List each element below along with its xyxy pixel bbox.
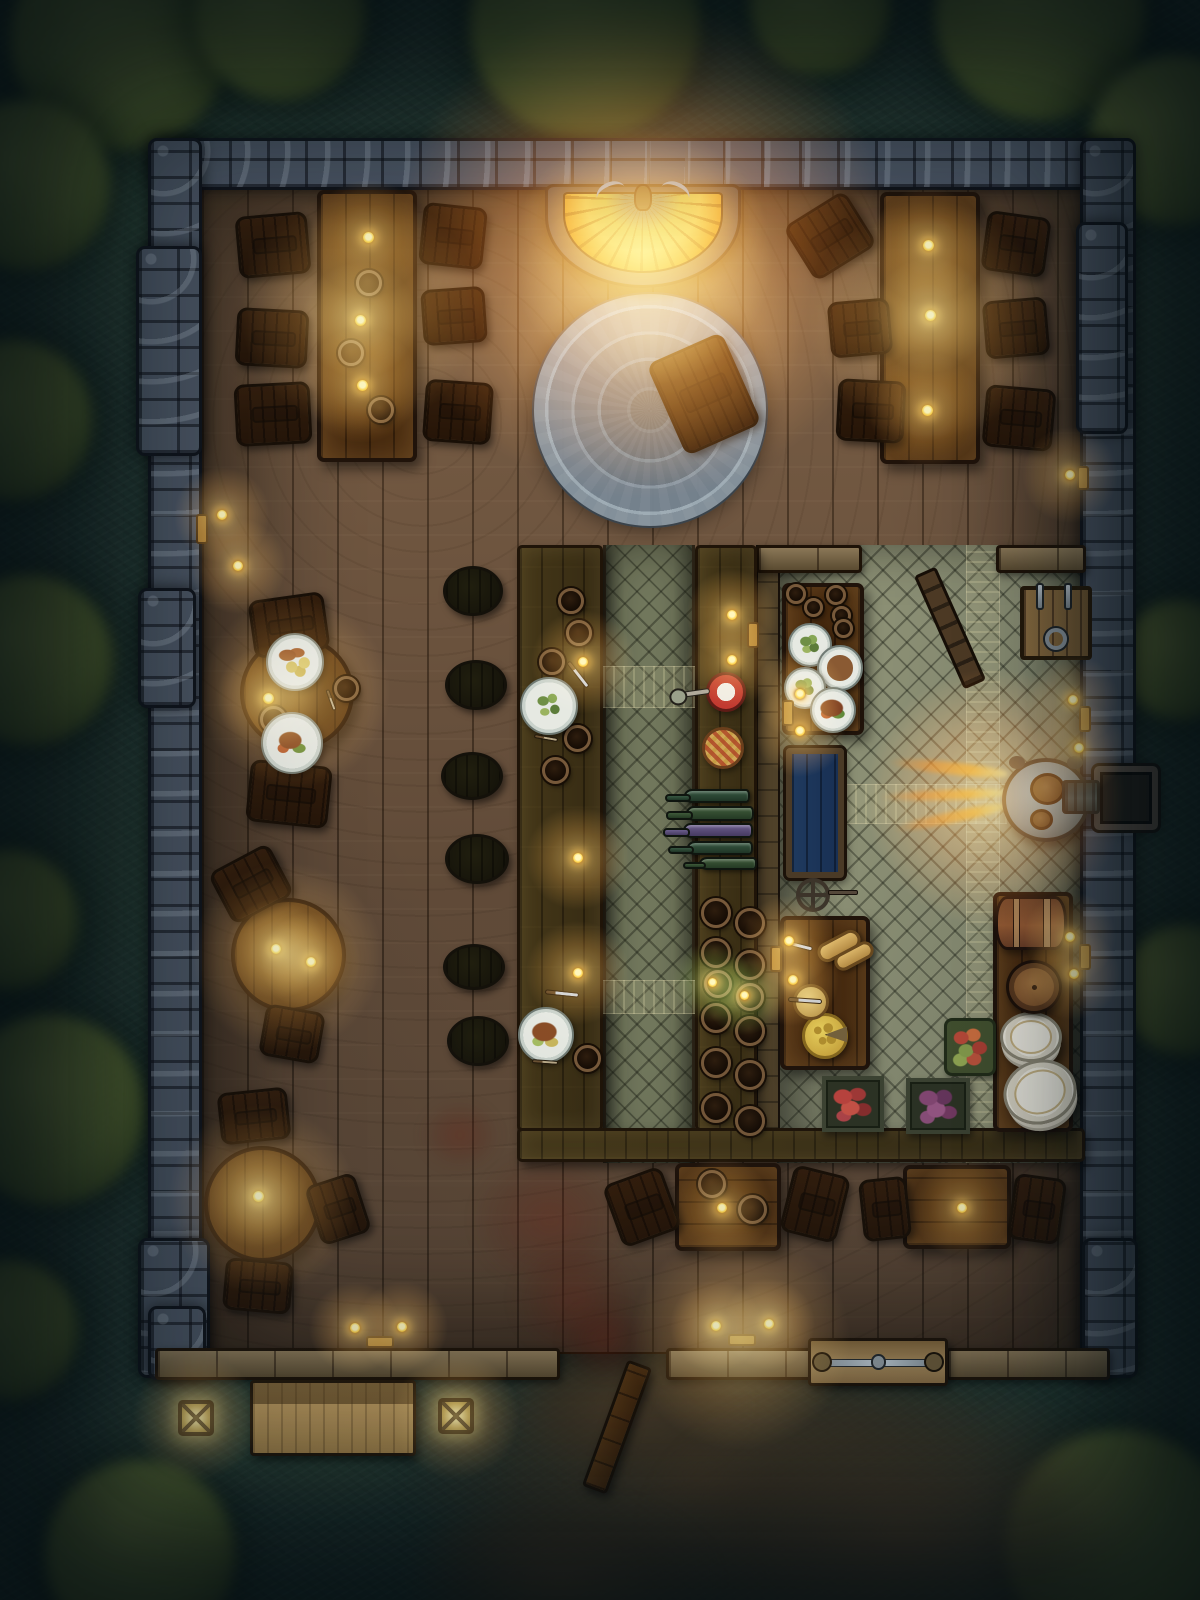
buttress [138, 588, 196, 708]
wine-bottle[interactable] [687, 841, 753, 855]
bar-stool[interactable] [447, 1016, 509, 1066]
crate-of-crabs[interactable] [822, 1076, 884, 1132]
dining-table-northwest[interactable] [317, 190, 417, 462]
keg-barrel[interactable] [995, 896, 1067, 950]
mug[interactable] [834, 619, 853, 638]
cellar-trapdoor[interactable] [1020, 586, 1092, 660]
dining-table-south-right[interactable] [903, 1165, 1011, 1249]
bar-stool[interactable] [443, 566, 503, 616]
fireplace[interactable] [545, 184, 741, 288]
barrel-chair[interactable] [422, 379, 494, 446]
washing-table[interactable] [786, 748, 844, 878]
red-dish[interactable] [706, 672, 746, 712]
ground-lantern[interactable] [178, 1400, 214, 1436]
bar-stool[interactable] [445, 660, 507, 710]
mug[interactable] [558, 588, 584, 614]
barrel-chair[interactable] [234, 211, 311, 279]
trapdoor-hinge-icon [1036, 583, 1044, 609]
plate-greens[interactable] [520, 677, 578, 735]
mug[interactable] [738, 1195, 767, 1224]
sconce-bracket [196, 514, 208, 544]
wine-bottle[interactable] [683, 823, 753, 838]
valve-wheel[interactable] [796, 878, 830, 912]
shelf-mug[interactable] [701, 898, 731, 928]
barrel-chair[interactable] [222, 1257, 294, 1315]
sconce-bracket [1079, 706, 1091, 732]
barrel-chair[interactable] [420, 286, 488, 346]
barrel-chair[interactable] [235, 307, 310, 369]
shelf-mug[interactable] [735, 908, 765, 938]
barrel-chair[interactable] [1007, 1173, 1068, 1246]
shelf-mug[interactable] [701, 938, 731, 968]
tree-canopy [470, 0, 700, 140]
plate-roast-chicken[interactable] [518, 1007, 574, 1063]
shelf-mug[interactable] [704, 970, 732, 998]
floor-ornament-band [603, 980, 695, 1014]
wall-north [150, 138, 1112, 190]
shelf-mug[interactable] [736, 983, 764, 1011]
buttress [136, 246, 202, 456]
shelf-mug[interactable] [735, 1060, 765, 1090]
wall-south [946, 1348, 1110, 1380]
shelf-mug[interactable] [701, 1093, 731, 1123]
mug[interactable] [698, 1170, 726, 1198]
chimney [1094, 766, 1158, 830]
shelf-mug[interactable] [701, 1003, 731, 1033]
wine-bottle[interactable] [699, 857, 757, 870]
mug[interactable] [826, 585, 846, 605]
kitchen-divider [756, 545, 780, 1131]
sconce-bracket [366, 1336, 394, 1348]
tree-canopy [45, 1460, 235, 1600]
stove-burner [1030, 809, 1053, 830]
outdoor-bench[interactable] [250, 1380, 416, 1456]
tavern-battle-map [0, 0, 1200, 1600]
lattice-pie[interactable] [702, 727, 744, 769]
sconce-bracket [728, 1334, 756, 1346]
bar-stool[interactable] [443, 944, 505, 990]
bar-walkway-floor [603, 545, 695, 1163]
round-table-3[interactable] [204, 1146, 321, 1262]
barrel-chair[interactable] [981, 384, 1056, 452]
tree-canopy [0, 850, 78, 990]
produce-basket[interactable] [944, 1018, 996, 1076]
bar-stool[interactable] [445, 834, 509, 884]
ring-pull-icon [1045, 628, 1067, 650]
tree-canopy [0, 1015, 145, 1205]
barrel-chair[interactable] [258, 1003, 326, 1065]
door-handle [871, 1354, 886, 1369]
stove-pipe [1062, 780, 1100, 814]
barrel-chair[interactable] [216, 1086, 291, 1145]
sconce-bracket [782, 700, 794, 726]
ground-lantern[interactable] [438, 1398, 474, 1434]
mug[interactable] [564, 725, 591, 752]
barrel-chair[interactable] [982, 296, 1051, 359]
sliding-door[interactable] [808, 1338, 948, 1386]
tree-canopy [0, 1260, 78, 1400]
bar-stool[interactable] [441, 752, 503, 800]
tree-canopy [0, 575, 113, 745]
sconce-bracket [747, 622, 759, 648]
mug[interactable] [539, 649, 565, 675]
mug[interactable] [566, 620, 592, 646]
valve-handle [828, 890, 858, 895]
tree-canopy [750, 0, 890, 75]
crate-of-beets[interactable] [906, 1078, 970, 1134]
mug[interactable] [574, 1045, 601, 1072]
mug[interactable] [368, 397, 394, 423]
plate-sausage-potatoes[interactable] [266, 633, 324, 691]
kitchen-north-beam [756, 545, 862, 573]
barrel-chair[interactable] [835, 378, 906, 443]
plate-roast[interactable] [810, 687, 856, 733]
mug[interactable] [356, 270, 382, 296]
wine-bottle[interactable] [686, 806, 754, 821]
kitchen-north-beam [996, 545, 1086, 573]
mug[interactable] [542, 757, 569, 784]
barrel-chair[interactable] [980, 210, 1052, 278]
wooden-tub[interactable] [1006, 960, 1062, 1014]
mug[interactable] [786, 584, 806, 604]
sconce-bracket [770, 946, 782, 972]
tree-canopy [0, 340, 92, 500]
wall-south [155, 1348, 560, 1380]
plate-roast[interactable] [261, 712, 323, 774]
trapdoor-hinge-icon [1064, 583, 1072, 609]
wine-bottle[interactable] [684, 789, 750, 803]
sconce-bracket [1077, 466, 1089, 490]
barrel-chair[interactable] [827, 297, 894, 358]
shelf-mug[interactable] [735, 1016, 765, 1046]
sconce-bracket [1079, 944, 1091, 970]
mug[interactable] [334, 676, 359, 701]
barrel-chair[interactable] [858, 1176, 912, 1243]
stove-burner [1030, 773, 1065, 805]
service-counter-south[interactable] [517, 1128, 1085, 1162]
tree-canopy [195, 0, 365, 100]
stag-skull-icon [634, 184, 652, 211]
shelf-mug[interactable] [701, 1048, 731, 1078]
wall-south [666, 1348, 812, 1380]
buttress [1076, 222, 1128, 434]
mug[interactable] [338, 340, 364, 366]
shelf-mug[interactable] [735, 1106, 765, 1136]
blood-stain [420, 1100, 500, 1170]
door-handle [924, 1352, 944, 1372]
plate-stack[interactable] [1000, 1012, 1062, 1062]
barrel-chair[interactable] [233, 381, 312, 447]
mug[interactable] [804, 598, 823, 617]
door-handle [812, 1352, 832, 1372]
barrel-chair[interactable] [418, 202, 488, 270]
shelf-mug[interactable] [735, 950, 765, 980]
